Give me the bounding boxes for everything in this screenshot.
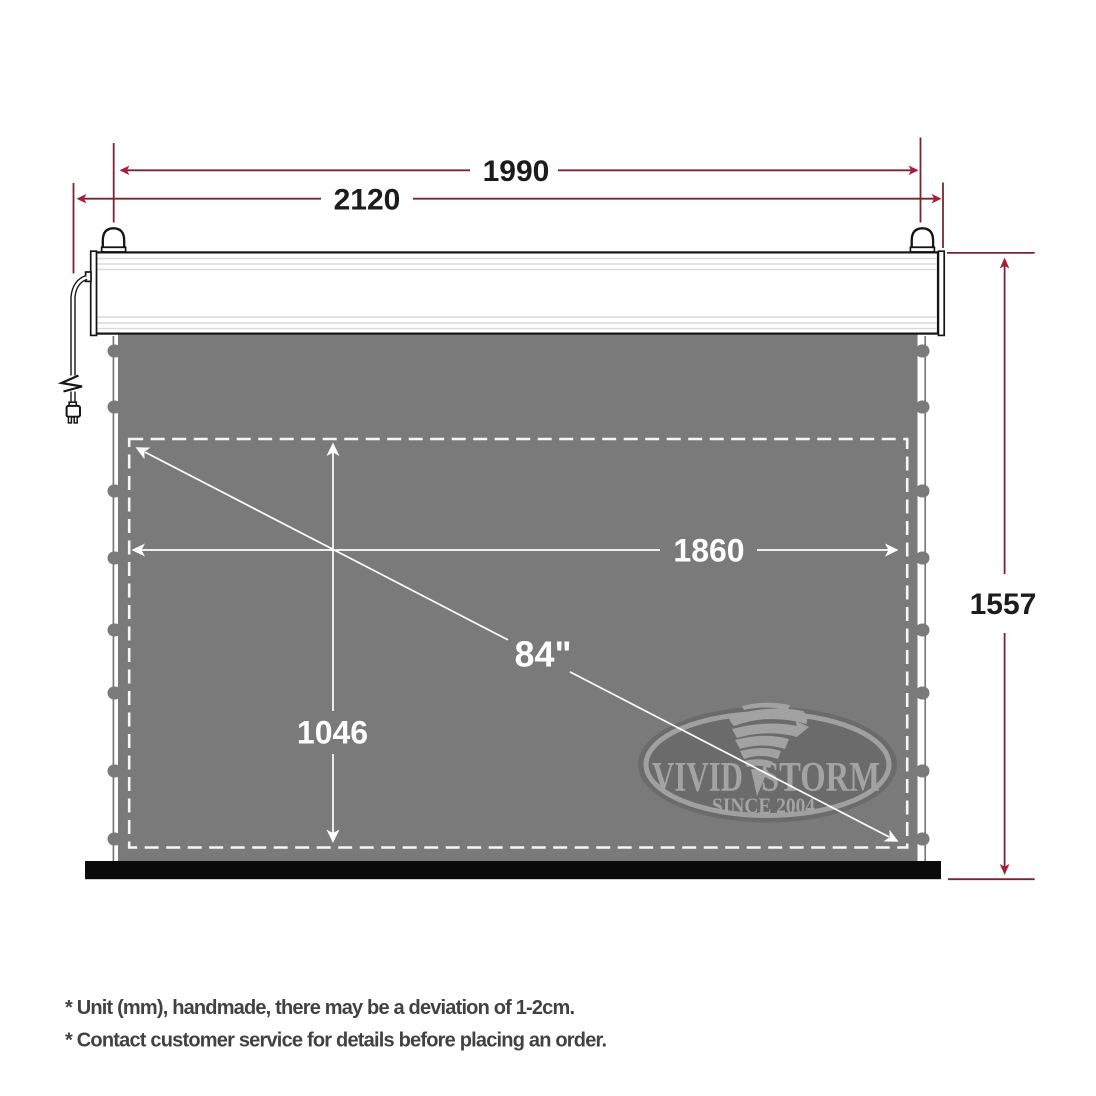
svg-text:1990: 1990 [483, 155, 550, 188]
svg-text:1046: 1046 [297, 714, 368, 750]
svg-text:1557: 1557 [970, 588, 1037, 621]
svg-text:* Contact customer service for: * Contact customer service for details b… [65, 1029, 607, 1051]
svg-text:84": 84" [514, 633, 571, 674]
svg-text:2120: 2120 [334, 184, 401, 217]
svg-text:* Unit (mm), handmade, there m: * Unit (mm), handmade, there may be a de… [65, 997, 575, 1019]
svg-text:1860: 1860 [673, 532, 744, 568]
svg-text:SINCE 2004: SINCE 2004 [712, 793, 815, 818]
